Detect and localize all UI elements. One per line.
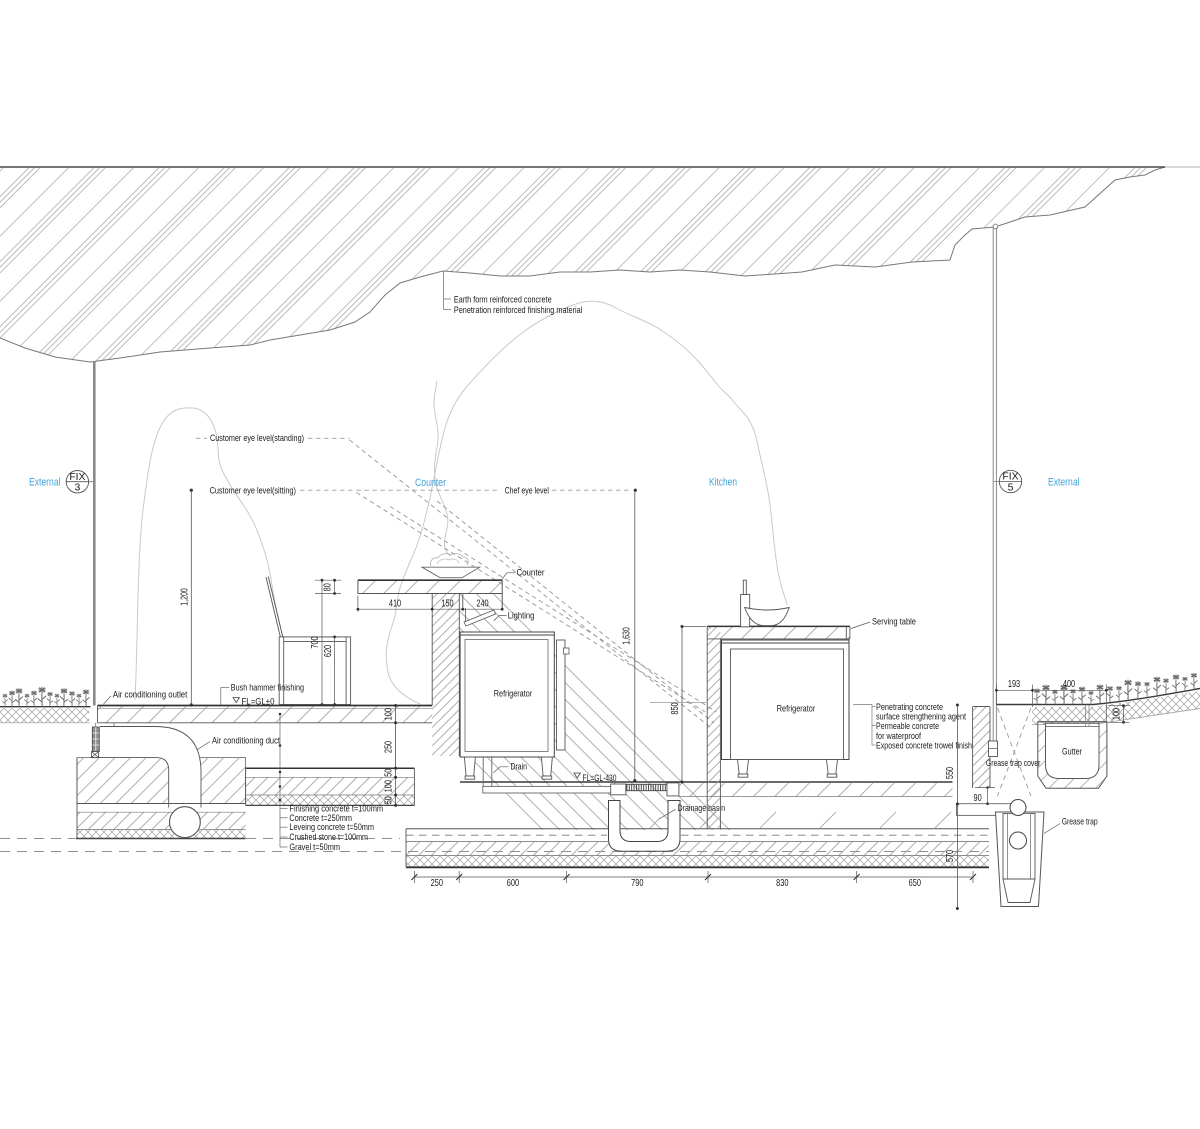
svg-text:Chef eye level: Chef eye level xyxy=(505,485,549,495)
svg-text:Gutter: Gutter xyxy=(1062,747,1082,757)
svg-text:for waterproof: for waterproof xyxy=(876,731,921,741)
svg-text:620: 620 xyxy=(323,645,334,657)
svg-text:Finishing concrete t=100mm: Finishing concrete t=100mm xyxy=(289,803,383,813)
svg-text:Gravel t=50mm: Gravel t=50mm xyxy=(289,842,340,852)
svg-text:50: 50 xyxy=(384,769,395,777)
svg-text:100: 100 xyxy=(384,780,395,792)
svg-text:Crushed stone t=100mm: Crushed stone t=100mm xyxy=(289,832,368,842)
svg-text:790: 790 xyxy=(631,878,643,889)
svg-text:100: 100 xyxy=(384,708,395,720)
svg-text:Earth form reinforced concrete: Earth form reinforced concrete xyxy=(454,294,552,304)
svg-text:Serving table: Serving table xyxy=(872,617,916,627)
svg-text:FIX: FIX xyxy=(69,472,85,483)
svg-text:700: 700 xyxy=(310,636,321,648)
svg-text:Penetrating concrete: Penetrating concrete xyxy=(876,702,943,712)
svg-text:Drain: Drain xyxy=(511,762,528,772)
svg-text:Bush hammer finishing: Bush hammer finishing xyxy=(231,682,304,692)
svg-text:FIX: FIX xyxy=(1002,472,1018,483)
svg-text:3: 3 xyxy=(75,483,81,494)
svg-text:50: 50 xyxy=(384,796,395,804)
svg-text:Leveing concrete t=50mm: Leveing concrete t=50mm xyxy=(289,822,374,832)
svg-text:240: 240 xyxy=(476,598,488,609)
svg-text:1,200: 1,200 xyxy=(179,588,190,606)
svg-text:Refrigerator: Refrigerator xyxy=(777,704,816,714)
svg-text:Customer eye level(sitting): Customer eye level(sitting) xyxy=(210,485,296,495)
svg-text:FL=GL±0: FL=GL±0 xyxy=(242,696,275,706)
svg-text:External: External xyxy=(29,477,61,489)
svg-text:193: 193 xyxy=(1008,679,1020,690)
svg-text:surface strengthening agent: surface strengthening agent xyxy=(876,712,966,722)
svg-text:Counter: Counter xyxy=(415,477,446,489)
svg-text:550: 550 xyxy=(945,767,956,779)
svg-text:1,630: 1,630 xyxy=(622,627,633,645)
svg-text:Counter: Counter xyxy=(517,568,545,578)
svg-text:250: 250 xyxy=(431,878,443,889)
svg-text:250: 250 xyxy=(384,741,395,753)
svg-text:5: 5 xyxy=(1008,482,1014,493)
svg-text:90: 90 xyxy=(974,793,982,804)
svg-text:600: 600 xyxy=(507,878,519,889)
svg-text:400: 400 xyxy=(1063,679,1075,690)
svg-text:80: 80 xyxy=(323,583,334,591)
svg-text:650: 650 xyxy=(909,878,921,889)
svg-text:Customer eye level(standing): Customer eye level(standing) xyxy=(210,433,304,443)
svg-text:Air conditioning duct: Air conditioning duct xyxy=(212,736,280,746)
svg-text:FL=GL-430: FL=GL-430 xyxy=(583,773,617,783)
svg-text:830: 830 xyxy=(776,878,788,889)
svg-text:External: External xyxy=(1048,477,1080,489)
svg-text:850: 850 xyxy=(670,702,681,714)
svg-text:570: 570 xyxy=(945,850,956,862)
svg-text:410: 410 xyxy=(389,598,401,609)
svg-text:Kitchen: Kitchen xyxy=(709,477,737,489)
svg-text:150: 150 xyxy=(441,598,453,609)
svg-text:100: 100 xyxy=(1112,708,1123,720)
svg-text:Penetration reinforced finishi: Penetration reinforced finishing materia… xyxy=(454,305,582,315)
svg-text:Air conditioning outlet: Air conditioning outlet xyxy=(113,690,188,700)
svg-text:Grease trap cover: Grease trap cover xyxy=(986,758,1041,768)
svg-text:Grease trap: Grease trap xyxy=(1062,817,1098,827)
svg-text:Refrigerator: Refrigerator xyxy=(494,688,533,698)
svg-text:Lighting: Lighting xyxy=(508,610,535,620)
svg-text:Permeable concrete: Permeable concrete xyxy=(876,721,939,731)
